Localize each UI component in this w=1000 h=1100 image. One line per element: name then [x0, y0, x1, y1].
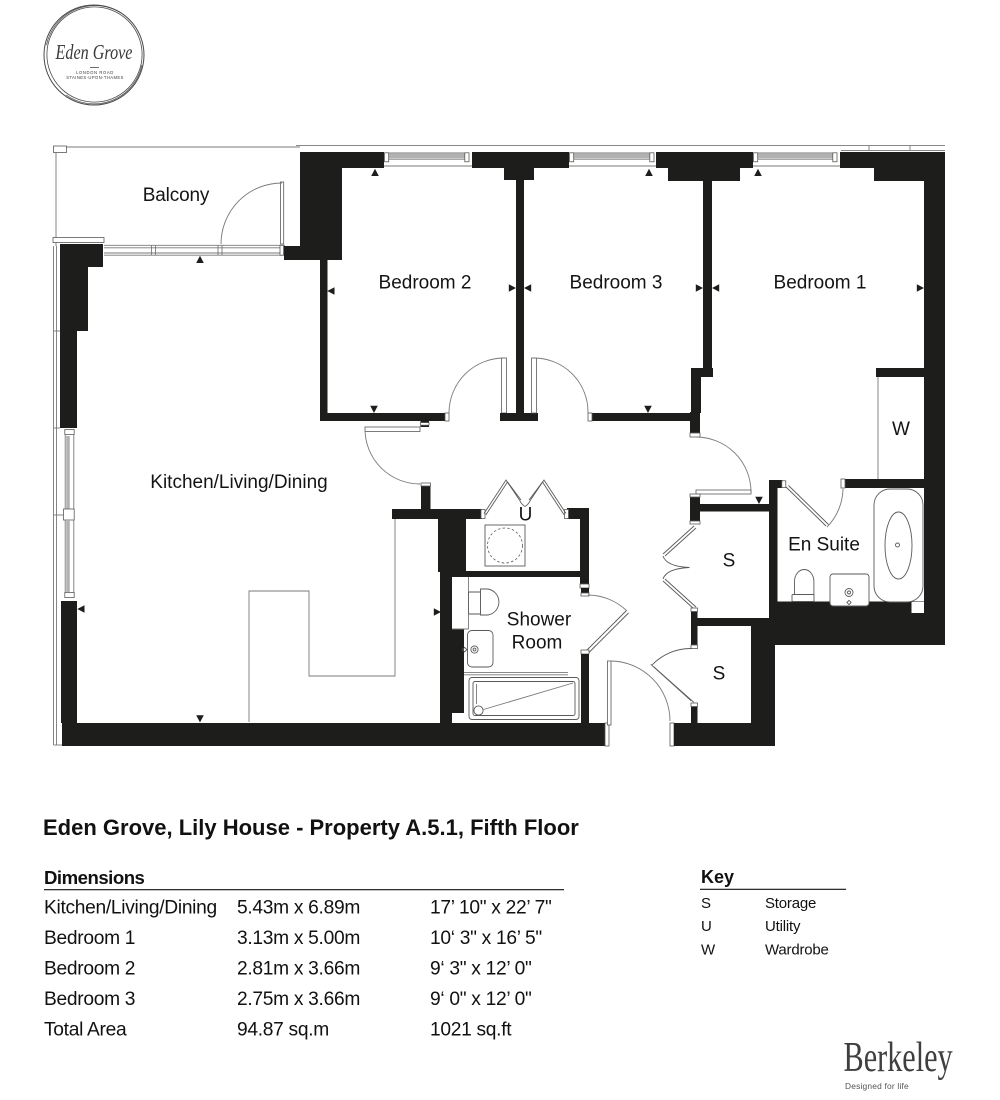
- svg-text:Bedroom 2: Bedroom 2: [379, 273, 472, 294]
- svg-text:Total Area: Total Area: [44, 1020, 127, 1041]
- svg-text:Dimensions: Dimensions: [44, 867, 145, 888]
- svg-text:Bedroom 1: Bedroom 1: [44, 928, 135, 949]
- svg-text:Key: Key: [701, 867, 734, 887]
- svg-text:Balcony: Balcony: [143, 185, 210, 206]
- svg-text:10‘ 3" x 16’ 5": 10‘ 3" x 16’ 5": [430, 928, 542, 949]
- svg-text:Bedroom 2: Bedroom 2: [44, 959, 135, 980]
- svg-text:Shower: Shower: [507, 610, 572, 631]
- svg-text:Storage: Storage: [765, 895, 816, 912]
- svg-text:Berkeley: Berkeley: [844, 1033, 954, 1080]
- svg-text:Kitchen/Living/Dining: Kitchen/Living/Dining: [150, 472, 327, 493]
- svg-text:1021 sq.ft: 1021 sq.ft: [430, 1020, 512, 1041]
- svg-text:2.81m x 3.66m: 2.81m x 3.66m: [237, 959, 360, 980]
- svg-text:Eden Grove, Lily House - Prope: Eden Grove, Lily House - Property A.5.1,…: [43, 815, 579, 840]
- svg-text:S: S: [701, 895, 711, 912]
- svg-text:17’ 10" x 22’ 7": 17’ 10" x 22’ 7": [430, 898, 552, 919]
- svg-text:Eden Grove: Eden Grove: [55, 41, 133, 65]
- svg-text:S: S: [723, 551, 736, 572]
- svg-text:W: W: [701, 942, 716, 959]
- svg-text:94.87 sq.m: 94.87 sq.m: [237, 1020, 329, 1041]
- svg-text:9‘ 0" x 12’ 0": 9‘ 0" x 12’ 0": [430, 989, 532, 1010]
- svg-text:Designed for life: Designed for life: [845, 1081, 909, 1091]
- svg-text:2.75m x 3.66m: 2.75m x 3.66m: [237, 989, 360, 1010]
- svg-text:Bedroom 3: Bedroom 3: [570, 273, 663, 294]
- svg-text:Kitchen/Living/Dining: Kitchen/Living/Dining: [44, 898, 217, 919]
- svg-text:W: W: [892, 419, 910, 440]
- svg-text:5.43m x 6.89m: 5.43m x 6.89m: [237, 898, 360, 919]
- svg-text:En Suite: En Suite: [788, 535, 860, 556]
- svg-text:Bedroom 1: Bedroom 1: [774, 273, 867, 294]
- svg-text:U: U: [519, 505, 533, 526]
- svg-text:Utility: Utility: [765, 918, 801, 935]
- svg-text:Wardrobe: Wardrobe: [765, 942, 829, 959]
- svg-text:Room: Room: [512, 633, 563, 654]
- svg-text:3.13m x 5.00m: 3.13m x 5.00m: [237, 928, 360, 949]
- svg-text:9‘ 3" x 12’ 0": 9‘ 3" x 12’ 0": [430, 959, 532, 980]
- svg-text:STAINES-UPON-THAMES: STAINES-UPON-THAMES: [66, 75, 124, 80]
- svg-text:S: S: [713, 664, 726, 685]
- svg-text:Bedroom 3: Bedroom 3: [44, 989, 135, 1010]
- svg-text:U: U: [701, 918, 712, 935]
